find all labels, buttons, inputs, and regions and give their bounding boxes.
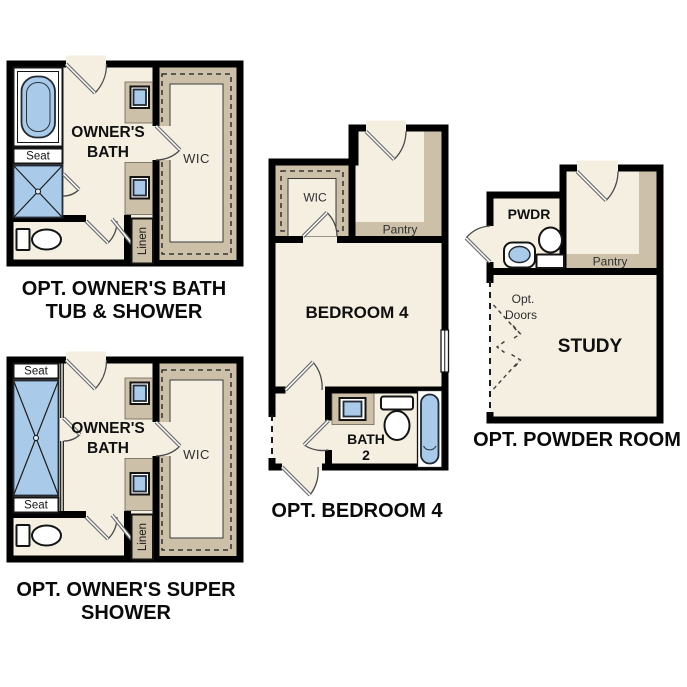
wic-label: WIC [183,151,210,166]
wall [349,125,356,244]
toilet [17,229,62,250]
plan-owners-super-shower: Seat Seat [7,352,241,625]
seat-bottom-label: Seat [24,500,48,512]
room-label-bedroom4: BEDROOM 4 [306,303,410,322]
plan3-caption: OPT. BEDROOM 4 [271,500,443,522]
seat-top-label: Seat [24,366,48,378]
floor-plan-figure: Seat Linen [0,0,687,687]
wall [325,450,332,471]
sink-vanity [125,378,153,419]
sink-vanity [125,82,153,123]
door-opening [366,121,406,133]
toilet [17,525,62,546]
linen-closet: Linen [132,515,154,560]
wall-gap [273,417,277,458]
wall [269,387,286,394]
wall [153,61,160,127]
room-label-pwdr: PWDR [508,206,551,222]
linen-label: Linen [137,227,149,255]
door-swing-powder [466,226,490,262]
room-label-owners: OWNER'S [71,124,144,141]
shower-seat: Seat [14,149,63,164]
plan1-caption-line1: OPT. OWNER'S BATH [22,278,226,300]
plan1-caption-line2: TUB & SHOWER [46,301,203,323]
door-opening [577,161,618,173]
plan4-caption: OPT. POWDER ROOM [473,429,681,451]
plan-bedroom4: WIC Pantry BEDROOM 4 BATH 2 OPT. BEDROOM… [268,121,449,523]
plan-owners-bath-tub-shower: Seat Linen [7,56,241,324]
room-label-study: STUDY [558,336,623,357]
sink-vanity [125,163,153,215]
linen-closet: Linen [132,219,154,264]
shower-seat: Seat [14,364,59,379]
bathtub [14,68,63,147]
floor-plan-sheet: Seat Linen [0,0,687,687]
linen-label: Linen [137,523,149,551]
room-label-bath: BATH [87,440,129,457]
shower-seat: Seat [14,498,59,513]
plan-powder-room: PWDR Pantry Opt. Doors STUDY OPT. POWDER… [466,161,681,452]
room-label-bath2-line2: 2 [362,447,370,463]
room-label-bath: BATH [87,144,129,161]
wall [487,268,664,275]
room-label-owners: OWNER'S [71,420,144,437]
opt-doors-label-line2: Doors [505,308,537,322]
door-swing-hall-exit [282,467,318,495]
seat-label: Seat [26,151,50,163]
window [441,330,449,372]
pantry-label: Pantry [383,223,418,237]
sink-vanity [332,394,374,425]
wall [337,236,449,243]
wic-label: WIC [183,447,210,462]
toilet [381,397,413,441]
plan2-caption-line1: OPT. OWNER'S SUPER [16,579,236,601]
wall [153,357,160,423]
wic-label: WIC [303,191,327,205]
pantry-label: Pantry [593,255,628,269]
pedestal-sink [504,243,535,268]
room-label-bath2-line1: BATH [347,431,385,447]
bathtub [418,391,443,468]
wall [325,387,332,421]
shower [14,166,63,218]
sink-vanity [125,459,153,511]
plan2-caption-line2: SHOWER [81,602,172,624]
wall [269,236,304,243]
opt-doors-label-line1: Opt. [512,292,535,306]
toilet [537,228,565,269]
shower [14,381,59,496]
